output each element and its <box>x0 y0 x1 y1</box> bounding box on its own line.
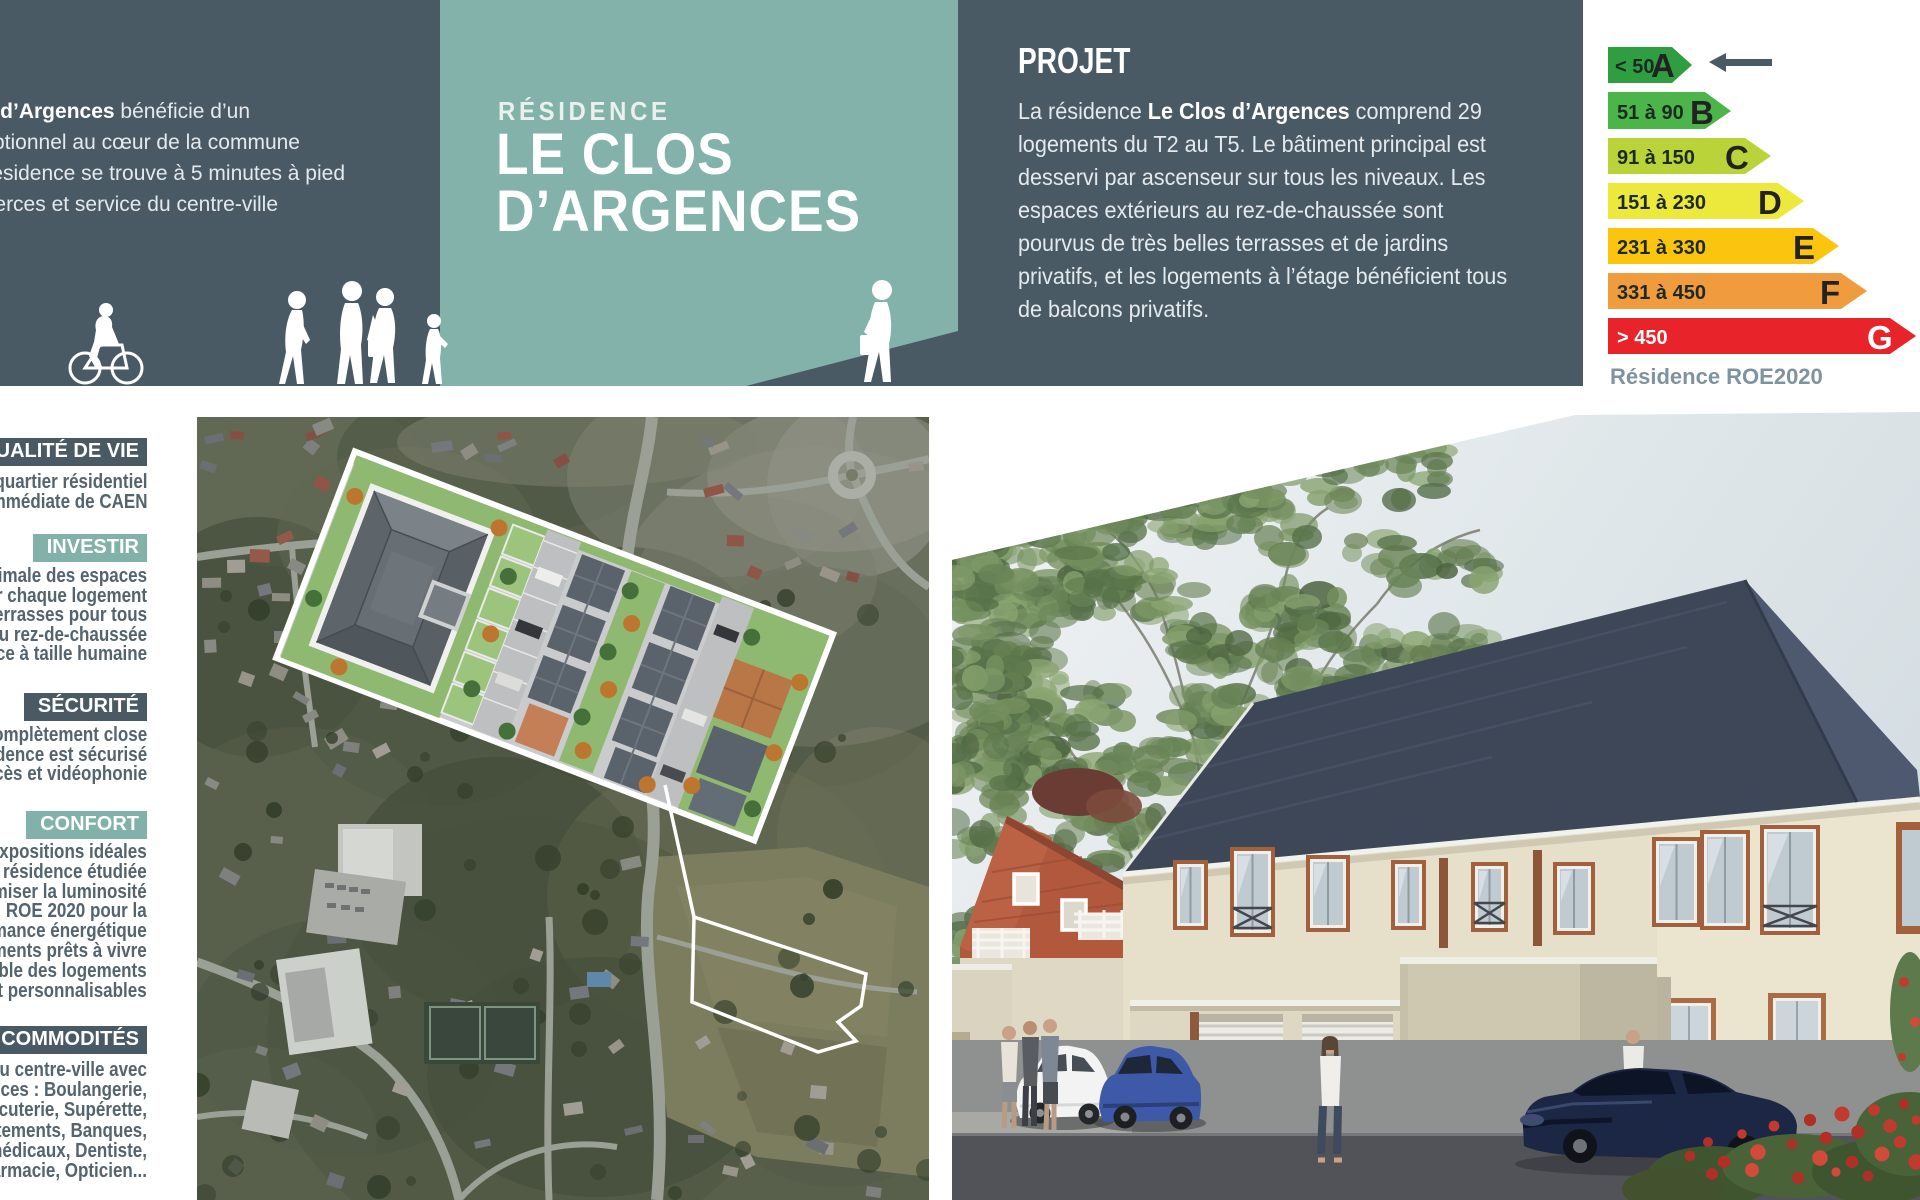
svg-text:51 à 90: 51 à 90 <box>1617 102 1684 124</box>
svg-text:< 50: < 50 <box>1615 56 1654 78</box>
svg-text:G: G <box>1867 319 1893 356</box>
svg-text:D: D <box>1758 184 1782 221</box>
svg-text:E: E <box>1793 229 1815 266</box>
svg-text:F: F <box>1820 274 1840 311</box>
svg-text:B: B <box>1690 94 1714 131</box>
svg-text:A: A <box>1651 47 1675 84</box>
svg-text:> 450: > 450 <box>1617 327 1668 349</box>
svg-text:231 à 330: 231 à 330 <box>1617 237 1706 259</box>
svg-text:151 à 230: 151 à 230 <box>1617 192 1706 214</box>
svg-text:C: C <box>1725 139 1749 176</box>
svg-text:331 à 450: 331 à 450 <box>1617 282 1706 304</box>
svg-text:91 à 150: 91 à 150 <box>1617 147 1695 169</box>
